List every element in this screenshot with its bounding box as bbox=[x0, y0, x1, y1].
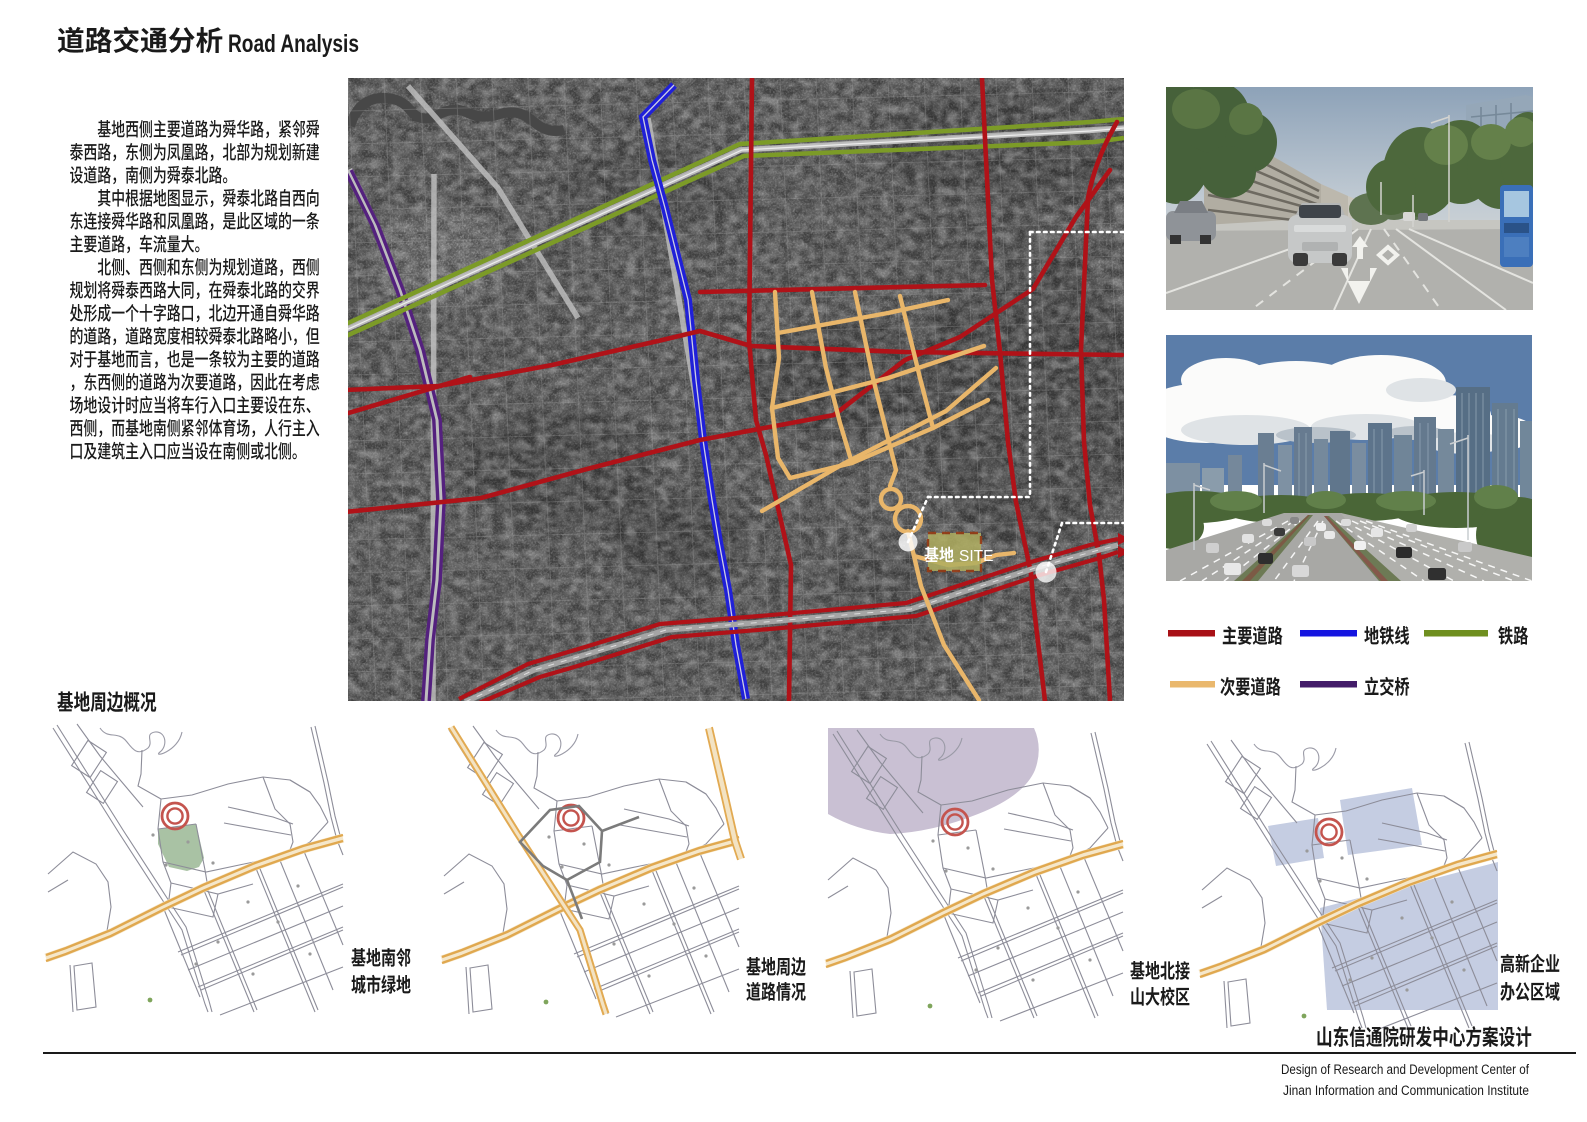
svg-text:SITE: SITE bbox=[959, 548, 993, 565]
svg-text:Jinan Information and Communic: Jinan Information and Communication Inst… bbox=[1283, 1083, 1529, 1098]
svg-text:Design of Research and Develop: Design of Research and Development Cente… bbox=[1281, 1062, 1529, 1077]
